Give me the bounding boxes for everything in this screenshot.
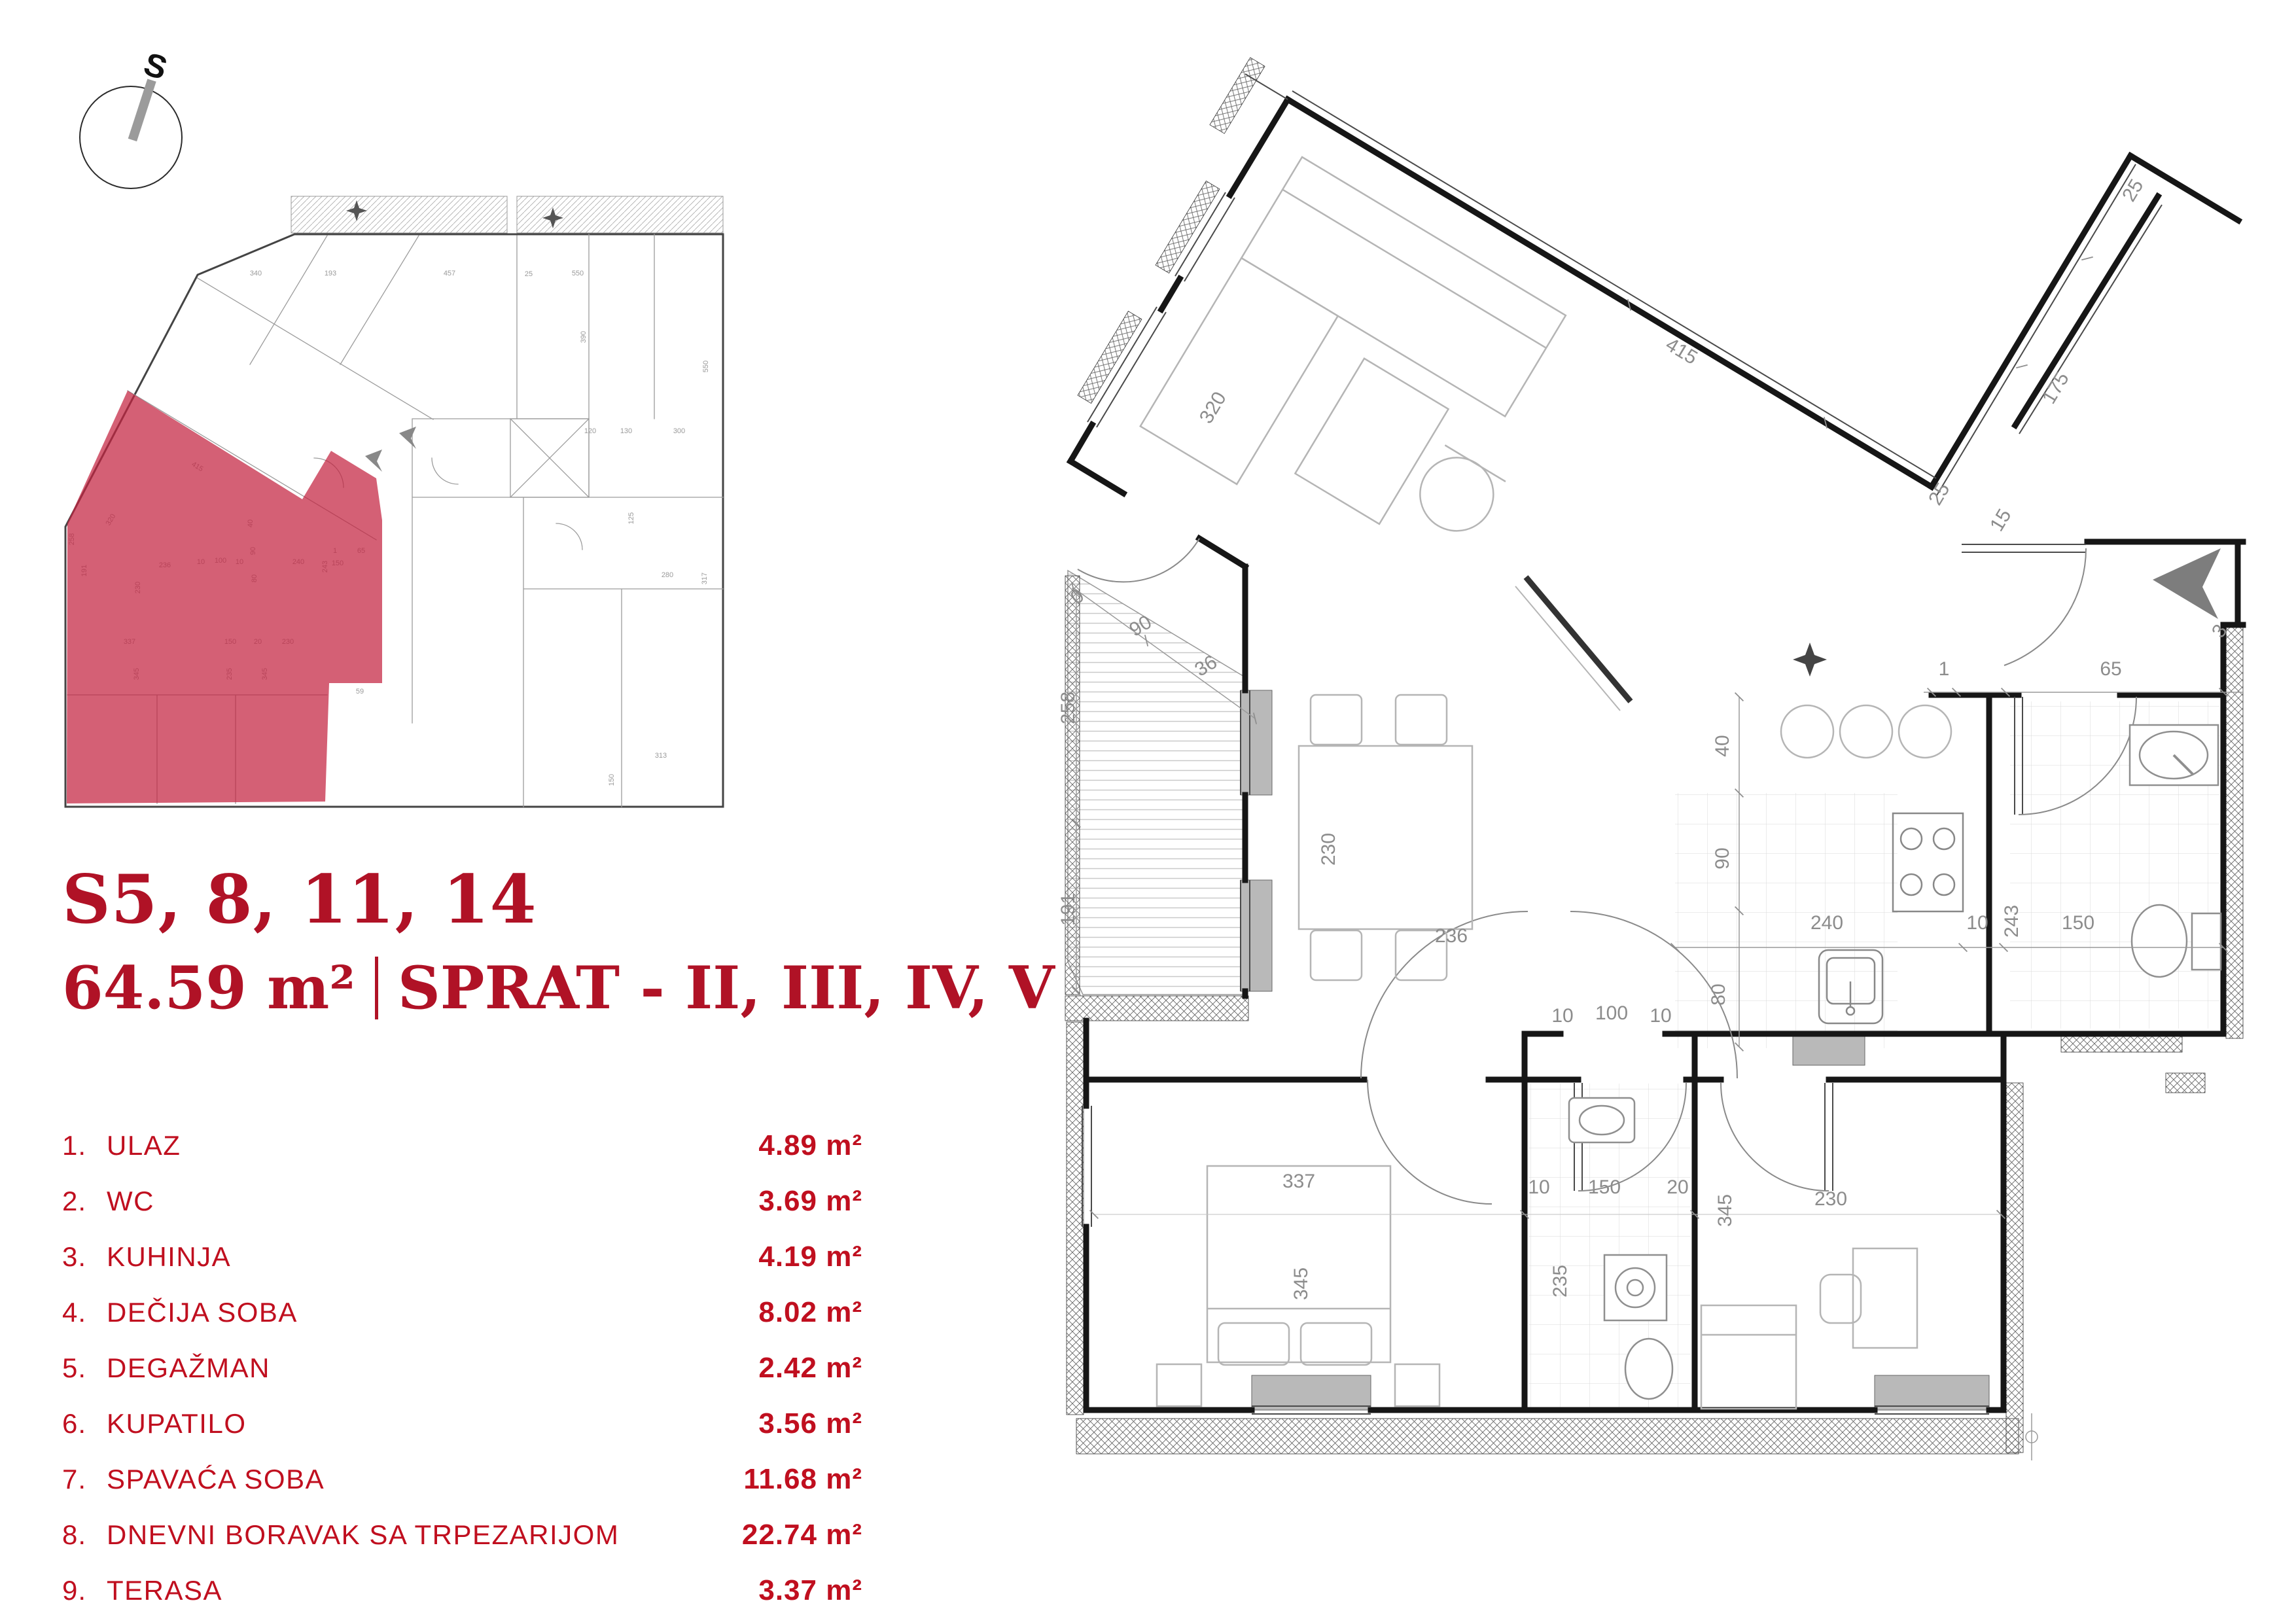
- dimension-label: 193: [325, 270, 336, 277]
- dimension-label: 1: [1939, 658, 1950, 680]
- dimension-label: 191: [1057, 893, 1079, 926]
- room-row: 8.DNEVNI BORAVAK SA TRPEZARIJOM22.74 m²: [62, 1519, 862, 1574]
- dimension-label: 10: [1528, 1176, 1549, 1198]
- room-list: 1.ULAZ4.89 m²2.WC3.69 m²3.KUHINJA4.19 m²…: [62, 1129, 862, 1624]
- tv-board-line: [1515, 586, 1620, 711]
- entrance-arrow-icon: [2153, 548, 2221, 619]
- room-number: 7.: [62, 1464, 107, 1495]
- room-row: 2.WC3.69 m²: [62, 1185, 862, 1241]
- desk-chair: [1820, 1275, 1861, 1323]
- desk: [1853, 1248, 1917, 1348]
- living-room-furniture: [1140, 157, 1596, 603]
- tv-board: [1526, 577, 1631, 701]
- room-number: 8.: [62, 1519, 107, 1551]
- toilet: [2132, 905, 2187, 977]
- nightstand: [1395, 1364, 1439, 1406]
- chair: [1311, 695, 1362, 745]
- north-label: S: [139, 45, 171, 87]
- compass: S: [80, 45, 182, 188]
- bath-toilet: [1625, 1339, 1672, 1399]
- title-block: S5, 8, 11, 14 64.59 m² SPRAT - II, III, …: [62, 865, 1055, 1023]
- dimension-label: 120: [584, 427, 596, 435]
- dimension-label: 345: [1290, 1267, 1312, 1300]
- unit-code: S5, 8, 11, 14: [62, 865, 1055, 935]
- dimension-label: 258: [1057, 692, 1079, 724]
- room-area: 22.74 m²: [742, 1519, 862, 1551]
- room-row: 5.DEGAŽMAN2.42 m²: [62, 1352, 862, 1407]
- coffee-table: [1295, 359, 1448, 524]
- dimension-label: 10: [1551, 1005, 1573, 1027]
- room-number: 2.: [62, 1186, 107, 1217]
- mini-plan: 3401934572555041532025819123623010100102…: [65, 196, 723, 807]
- armchair: [1406, 444, 1507, 544]
- room-name: DNEVNI BORAVAK SA TRPEZARIJOM: [107, 1519, 742, 1551]
- room-row: 3.KUHINJA4.19 m²: [62, 1241, 862, 1296]
- room-number: 5.: [62, 1352, 107, 1384]
- dimension-label: 300: [673, 427, 685, 435]
- separator-bar: [375, 957, 378, 1019]
- dimension-label: 100: [1595, 1002, 1628, 1024]
- unit-area: 64.59 m²: [62, 953, 355, 1023]
- dimension-label: 313: [655, 752, 667, 760]
- dimension-label: 10: [1650, 1005, 1671, 1027]
- room-name: TERASA: [107, 1575, 758, 1606]
- dimension-label: 243: [2001, 905, 2022, 938]
- chair: [1311, 930, 1362, 980]
- pillow: [1301, 1323, 1371, 1365]
- room-area: 11.68 m²: [743, 1463, 862, 1496]
- room-name: KUPATILO: [107, 1408, 758, 1439]
- chair: [1396, 695, 1447, 745]
- room-area: 3.56 m²: [758, 1407, 862, 1440]
- room-area: 4.89 m²: [758, 1129, 862, 1162]
- floor-plan-page: S 34019345725550415320258191236230101001…: [0, 0, 2296, 1624]
- dimension-label: 175: [2038, 368, 2074, 408]
- dimension-label: 240: [1810, 912, 1843, 934]
- room-name: DEGAŽMAN: [107, 1352, 758, 1384]
- unit-area-floor: 64.59 m² SPRAT - II, III, IV, V: [62, 953, 1055, 1023]
- main-plan: 4153202517515250903625819123023616540908…: [1057, 58, 2243, 1460]
- dimension-label: 125: [627, 512, 635, 524]
- room-area: 4.19 m²: [758, 1241, 862, 1273]
- room-name: DEČIJA SOBA: [107, 1297, 758, 1328]
- nightstand: [1157, 1364, 1201, 1406]
- dimension-label: 15: [1986, 505, 2015, 535]
- toilet-tank: [2192, 913, 2221, 970]
- kitchen-circle: [1899, 705, 1951, 758]
- north-star-icon: [1793, 643, 1827, 677]
- roof-terrace-hatch: [517, 196, 723, 233]
- dimension-label: 280: [662, 571, 673, 579]
- dimension-label: 130: [620, 427, 632, 435]
- dimension-label: 235: [1549, 1265, 1571, 1297]
- room-area: 3.37 m²: [758, 1574, 862, 1607]
- dimension-label: 150: [1588, 1176, 1621, 1198]
- room-row: 4.DEČIJA SOBA8.02 m²: [62, 1296, 862, 1352]
- room-area: 8.02 m²: [758, 1296, 862, 1329]
- dimension-label: 340: [250, 270, 262, 277]
- cooktop: [1893, 813, 1963, 911]
- dimension-label: 345: [1714, 1194, 1736, 1227]
- bath-sink: [1580, 1106, 1624, 1135]
- dimension-label: 457: [444, 270, 455, 277]
- dimension-label: 65: [2100, 658, 2121, 680]
- dimension-label: 59: [356, 688, 364, 696]
- room-row: 9.TERASA3.37 m²: [62, 1574, 862, 1624]
- double-bed: [1207, 1166, 1390, 1362]
- dimension-label: 230: [1814, 1188, 1847, 1210]
- room-row: 7.SPAVAĆA SOBA11.68 m²: [62, 1463, 862, 1519]
- room-area: 2.42 m²: [758, 1352, 862, 1385]
- dimension-label: 40: [1712, 735, 1733, 756]
- pillow: [1218, 1323, 1289, 1365]
- room-number: 3.: [62, 1241, 107, 1273]
- room-number: 1.: [62, 1130, 107, 1161]
- dimension-label: 10: [1966, 912, 1988, 934]
- room-name: SPAVAĆA SOBA: [107, 1464, 743, 1495]
- roof-terrace-hatch: [291, 196, 507, 233]
- room-name: ULAZ: [107, 1130, 758, 1161]
- kitchen-circle: [1781, 705, 1833, 758]
- room-number: 9.: [62, 1575, 107, 1606]
- dimension-label: 415: [1662, 334, 1701, 369]
- dimension-label: 320: [1195, 388, 1231, 427]
- dimension-label: 80: [1708, 983, 1729, 1005]
- dimension-label: 25: [2118, 175, 2147, 205]
- room-area: 3.69 m²: [758, 1185, 862, 1218]
- dimension-label: 150: [608, 774, 616, 786]
- dimension-label: 25: [525, 270, 533, 278]
- room-row: 1.ULAZ4.89 m²: [62, 1129, 862, 1185]
- dimension-label: 550: [702, 361, 710, 372]
- kitchen-circle: [1840, 705, 1892, 758]
- unit-floor: SPRAT - II, III, IV, V: [398, 953, 1055, 1023]
- dimension-label: 337: [1282, 1171, 1315, 1192]
- room-number: 4.: [62, 1297, 107, 1328]
- dimension-label: 550: [572, 270, 584, 277]
- dimension-label: 390: [580, 331, 588, 343]
- room-name: WC: [107, 1186, 758, 1217]
- dimension-label: 20: [1667, 1176, 1688, 1198]
- dimension-label: 90: [1712, 847, 1733, 869]
- dimension-label: 317: [701, 573, 709, 584]
- survey-marker: [2026, 1413, 2038, 1460]
- dimension-label: 236: [1435, 925, 1468, 947]
- child-bed: [1701, 1305, 1796, 1409]
- dimension-label: 230: [1318, 833, 1339, 866]
- kitchen-tiles: [1675, 793, 1898, 1048]
- terrace-deck: [1068, 571, 1245, 995]
- room-row: 6.KUPATILO3.56 m²: [62, 1407, 862, 1463]
- room-number: 6.: [62, 1408, 107, 1439]
- room-name: KUHINJA: [107, 1241, 758, 1273]
- dimension-label: 150: [2062, 912, 2094, 934]
